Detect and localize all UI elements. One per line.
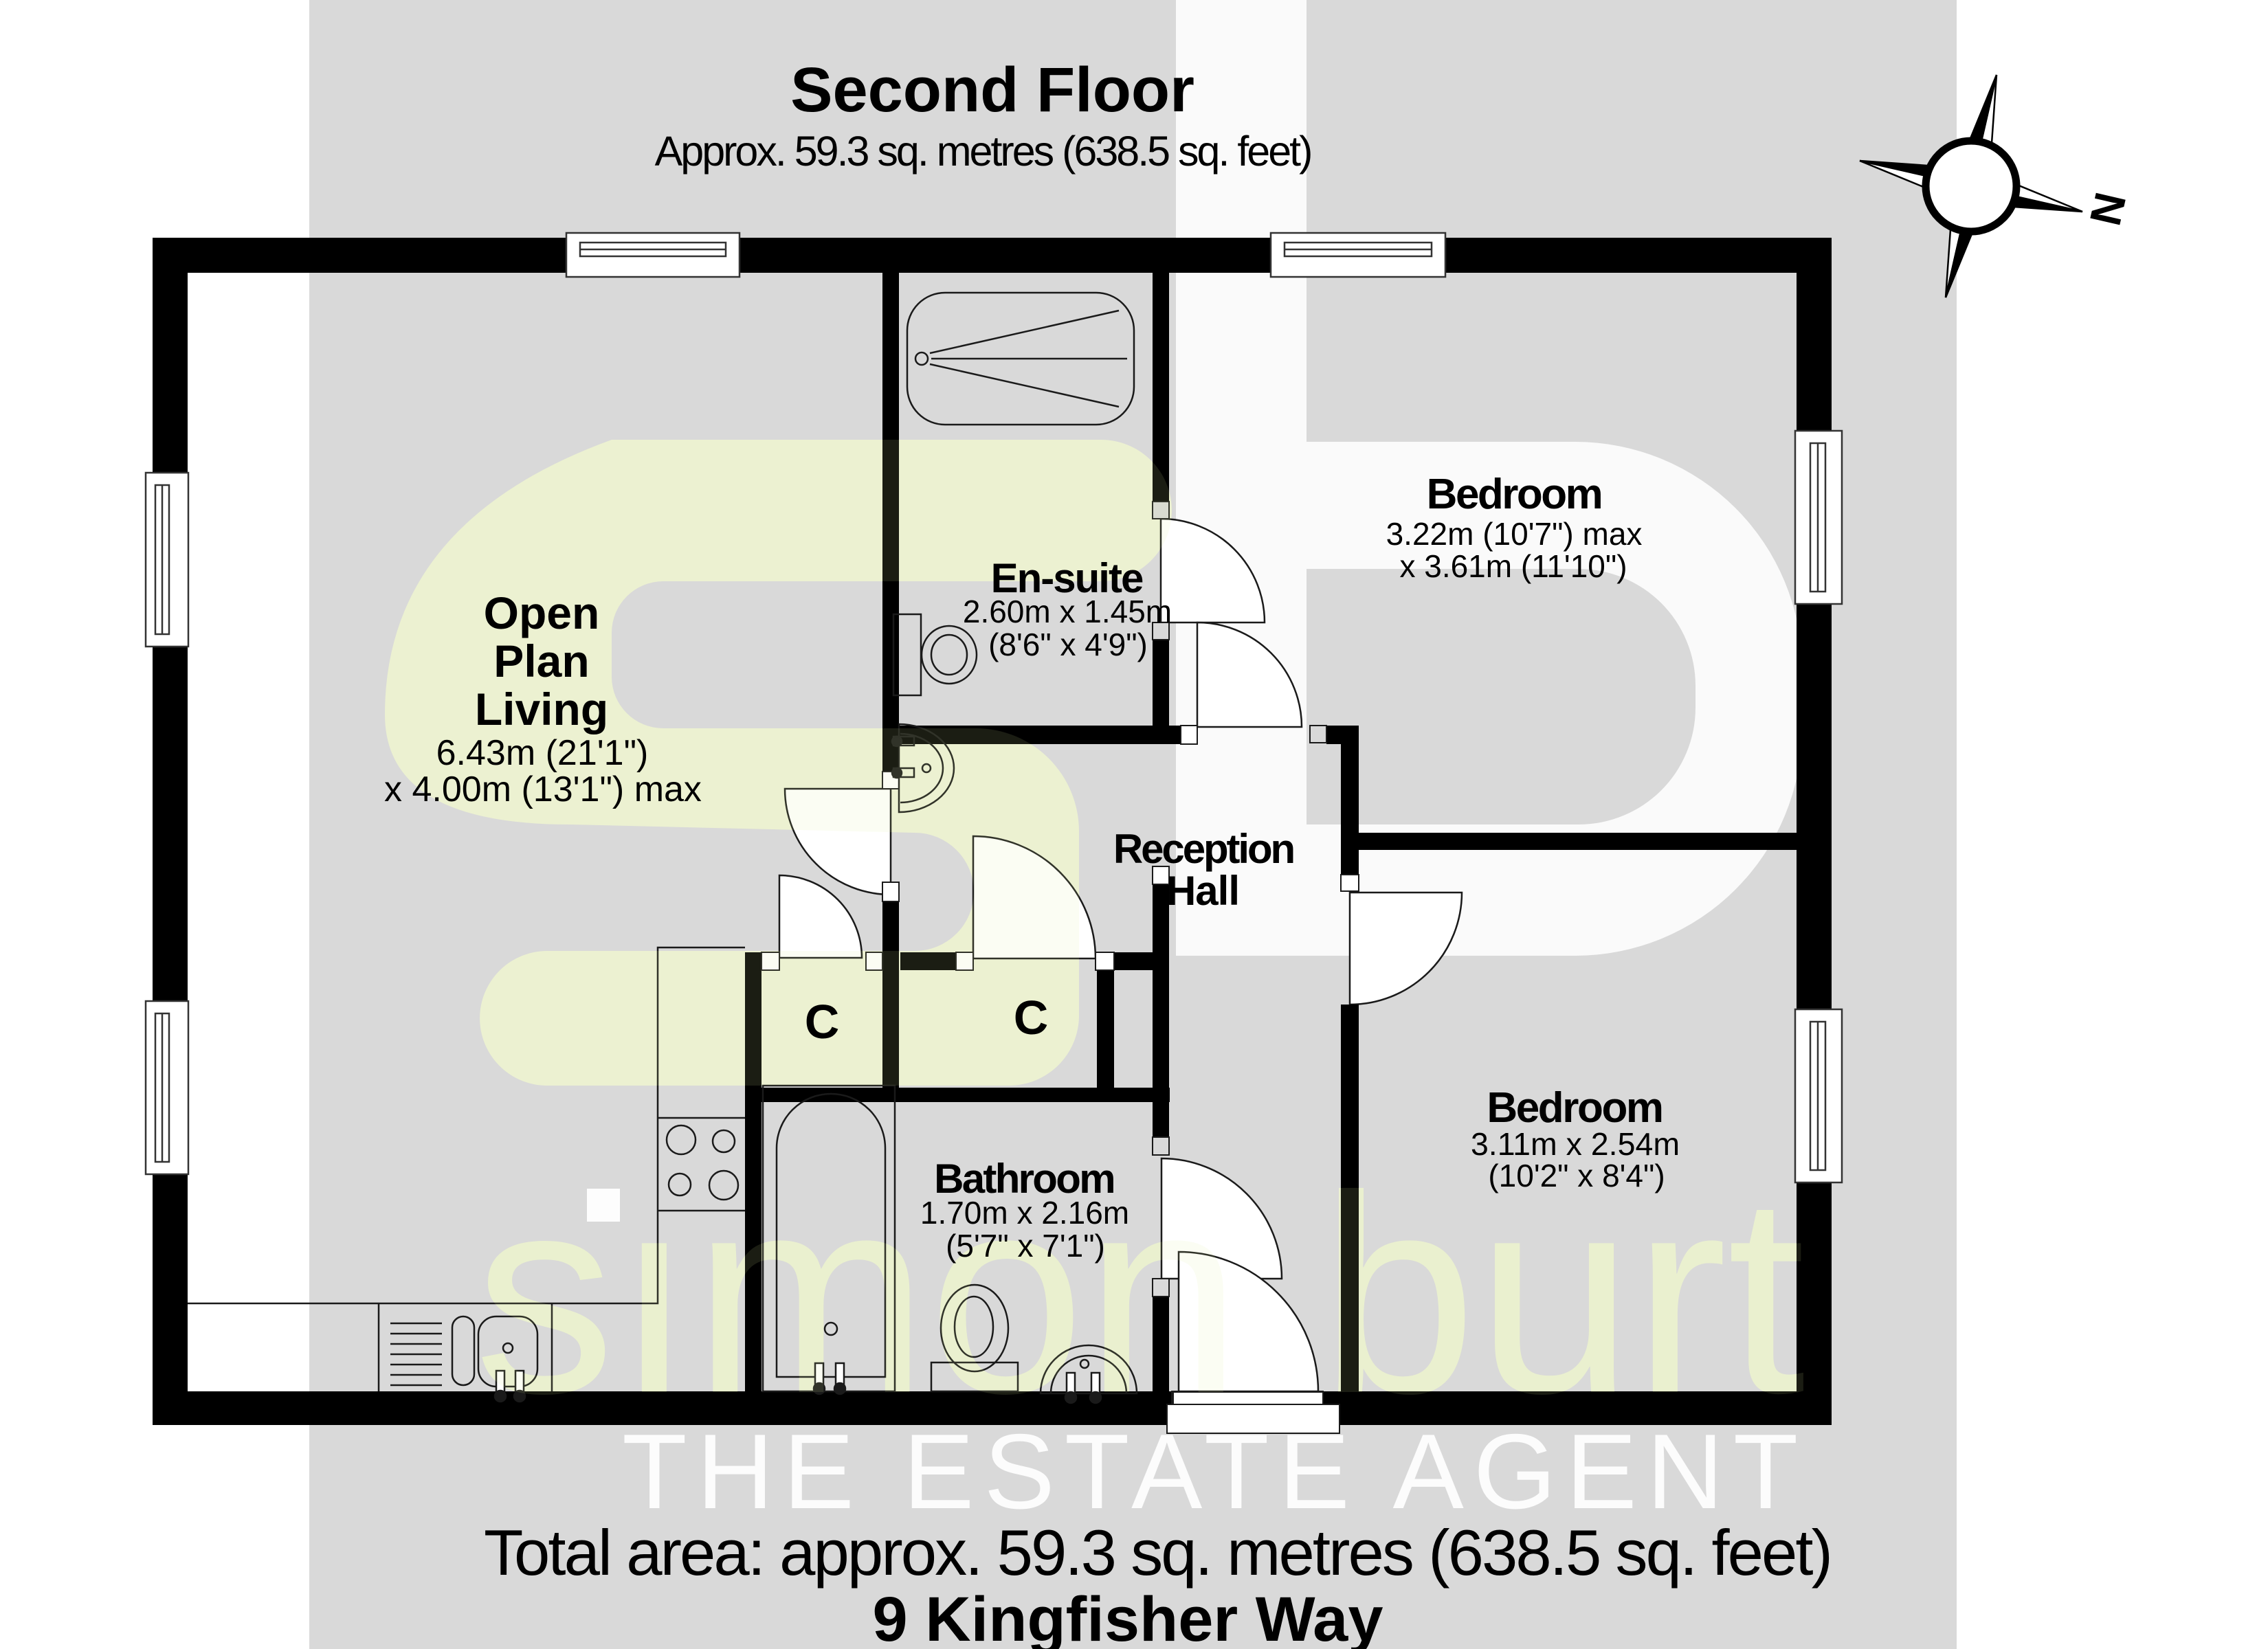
svg-text:Plan: Plan	[493, 636, 589, 686]
svg-text:x 4.00m (13'1") max: x 4.00m (13'1") max	[384, 770, 702, 809]
svg-text:Reception: Reception	[1113, 826, 1293, 872]
svg-text:Open: Open	[484, 587, 600, 638]
svg-text:x 3.61m (11'10"): x 3.61m (11'10")	[1399, 548, 1627, 584]
svg-text:2.60m x 1.45m: 2.60m x 1.45m	[963, 594, 1172, 629]
svg-text:1.70m x 2.16m: 1.70m x 2.16m	[920, 1195, 1129, 1231]
svg-text:9 Kingfisher Way: 9 Kingfisher Way	[873, 1584, 1383, 1649]
svg-text:(5'7" x 7'1"): (5'7" x 7'1")	[946, 1228, 1105, 1264]
svg-text:(8'6" x 4'9"): (8'6" x 4'9")	[988, 627, 1148, 662]
svg-text:Bedroom: Bedroom	[1427, 471, 1602, 518]
svg-text:Bedroom: Bedroom	[1487, 1084, 1662, 1132]
svg-text:Living: Living	[475, 684, 608, 734]
svg-text:C: C	[1014, 991, 1049, 1044]
svg-text:(10'2" x 8'4"): (10'2" x 8'4")	[1488, 1158, 1665, 1193]
svg-text:Second Floor: Second Floor	[790, 55, 1194, 125]
svg-text:Hall: Hall	[1166, 868, 1239, 914]
svg-text:Total area: approx. 59.3 sq. m: Total area: approx. 59.3 sq. metres (638…	[484, 1516, 1831, 1589]
svg-text:3.11m x 2.54m: 3.11m x 2.54m	[1471, 1126, 1680, 1162]
svg-text:C: C	[805, 995, 840, 1048]
svg-text:Approx. 59.3 sq. metres (638.5: Approx. 59.3 sq. metres (638.5 sq. feet)	[655, 128, 1311, 175]
svg-text:6.43m (21'1"): 6.43m (21'1")	[436, 733, 649, 773]
svg-text:3.22m (10'7") max: 3.22m (10'7") max	[1386, 516, 1643, 552]
